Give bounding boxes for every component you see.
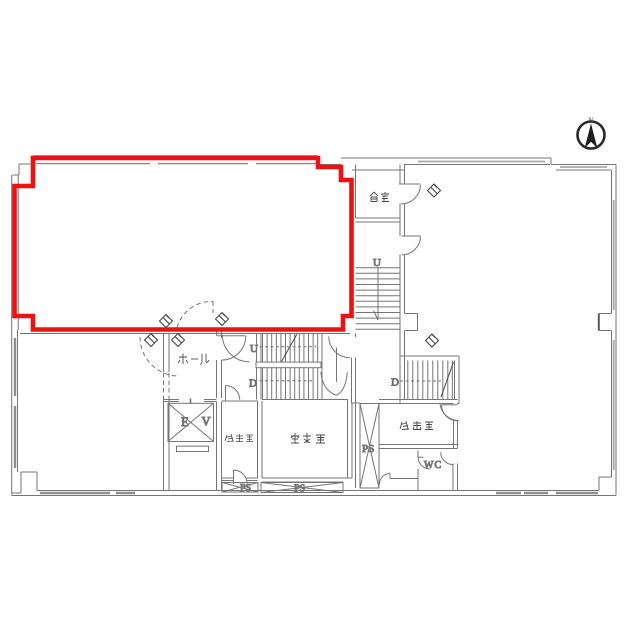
svg-text:D: D bbox=[391, 377, 399, 389]
svg-text:N: N bbox=[588, 116, 594, 125]
svg-text:WC: WC bbox=[424, 460, 442, 471]
svg-text:V: V bbox=[201, 415, 210, 429]
svg-text:U: U bbox=[250, 343, 258, 355]
svg-text:PS: PS bbox=[294, 484, 305, 495]
svg-text:PS: PS bbox=[240, 483, 251, 494]
svg-text:PS: PS bbox=[362, 443, 374, 455]
svg-text:D: D bbox=[249, 378, 257, 390]
svg-text:U: U bbox=[373, 257, 381, 269]
svg-text:E: E bbox=[181, 415, 189, 429]
